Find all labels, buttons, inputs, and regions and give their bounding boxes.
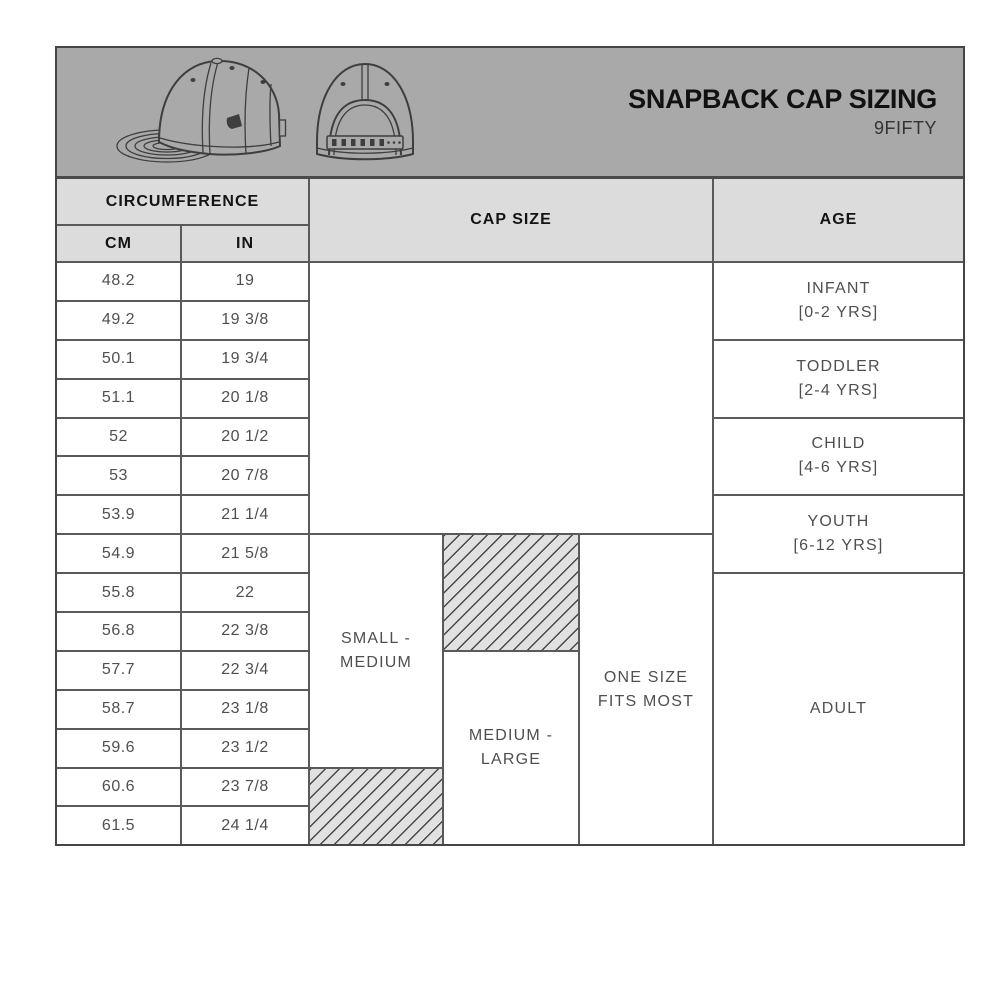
col-header-age: AGE — [714, 179, 963, 261]
in-value: 19 — [182, 263, 308, 300]
in-value: 22 — [182, 574, 308, 611]
cm-value: 58.7 — [57, 691, 180, 728]
cm-value: 57.7 — [57, 652, 180, 689]
cap-size-empty-region — [310, 263, 712, 533]
cap-size-label-line: SMALL - — [341, 627, 411, 651]
cap-size-one-size-fits-most: ONE SIZE FITS MOST — [580, 535, 712, 844]
header-band: SNAPBACK CAP SIZING 9FIFTY — [57, 48, 963, 179]
cm-value: 55.8 — [57, 574, 180, 611]
cm-value: 49.2 — [57, 302, 180, 339]
in-value: 21 1/4 — [182, 496, 308, 533]
cm-value: 60.6 — [57, 769, 180, 806]
age-group-adult: ADULT — [714, 574, 963, 844]
in-value: 19 3/4 — [182, 341, 308, 378]
cap-size-label-line: ONE SIZE — [604, 666, 688, 690]
chart-subtitle: 9FIFTY — [874, 118, 937, 139]
in-value: 23 1/8 — [182, 691, 308, 728]
col-header-in: IN — [182, 226, 308, 261]
cap-size-small-medium: SMALL - MEDIUM — [310, 535, 442, 766]
cm-value: 53 — [57, 457, 180, 494]
cap-illustrations — [115, 54, 435, 170]
in-value: 22 3/4 — [182, 652, 308, 689]
col-header-cap-size: CAP SIZE — [310, 179, 712, 261]
age-group-toddler: TODDLER [2-4 YRS] — [714, 341, 963, 417]
in-value: 21 5/8 — [182, 535, 308, 572]
snapback-cap-back-view-icon — [317, 64, 413, 159]
in-value: 20 1/2 — [182, 419, 308, 456]
in-value: 19 3/8 — [182, 302, 308, 339]
col-header-circumference: CIRCUMFERENCE — [57, 179, 308, 224]
age-label: CHILD — [811, 432, 865, 456]
snapback-sizing-chart: SNAPBACK CAP SIZING 9FIFTY CIRCUMFERENCE… — [55, 46, 965, 846]
age-years: [0-2 YRS] — [799, 301, 879, 325]
cm-value: 54.9 — [57, 535, 180, 572]
age-group-infant: INFANT [0-2 YRS] — [714, 263, 963, 339]
cap-size-medium-large: MEDIUM - LARGE — [444, 652, 578, 844]
in-value: 23 1/2 — [182, 730, 308, 767]
age-years: [4-6 YRS] — [799, 456, 879, 480]
age-label: INFANT — [806, 277, 870, 301]
age-label: TODDLER — [796, 355, 881, 379]
cm-value: 50.1 — [57, 341, 180, 378]
cm-value: 53.9 — [57, 496, 180, 533]
cap-size-small-medium-hatched-range — [310, 769, 442, 845]
cm-value: 56.8 — [57, 613, 180, 650]
cap-size-label-line: FITS MOST — [598, 690, 694, 714]
age-label: YOUTH — [808, 510, 870, 534]
col-header-cm: CM — [57, 226, 180, 261]
age-group-youth: YOUTH [6-12 YRS] — [714, 496, 963, 572]
snapback-cap-side-view-icon — [117, 58, 286, 162]
age-group-child: CHILD [4-6 YRS] — [714, 419, 963, 495]
cap-size-label-line: MEDIUM — [340, 651, 412, 675]
age-years: [6-12 YRS] — [794, 534, 884, 558]
cm-value: 59.6 — [57, 730, 180, 767]
cap-size-medium-large-hatched-range — [444, 535, 578, 650]
title-block: SNAPBACK CAP SIZING 9FIFTY — [628, 48, 963, 176]
age-years: [2-4 YRS] — [799, 379, 879, 403]
cm-value: 61.5 — [57, 807, 180, 844]
cm-value: 51.1 — [57, 380, 180, 417]
in-value: 20 1/8 — [182, 380, 308, 417]
cm-value: 48.2 — [57, 263, 180, 300]
age-label: ADULT — [810, 697, 867, 721]
cm-value: 52 — [57, 419, 180, 456]
in-value: 22 3/8 — [182, 613, 308, 650]
in-value: 20 7/8 — [182, 457, 308, 494]
chart-title: SNAPBACK CAP SIZING — [628, 85, 937, 113]
cap-size-label-line: MEDIUM - — [469, 724, 553, 748]
in-value: 24 1/4 — [182, 807, 308, 844]
cap-size-label-line: LARGE — [481, 748, 541, 772]
sizing-table: CIRCUMFERENCE CM IN CAP SIZE AGE 48.2 19… — [57, 179, 963, 844]
in-value: 23 7/8 — [182, 769, 308, 806]
